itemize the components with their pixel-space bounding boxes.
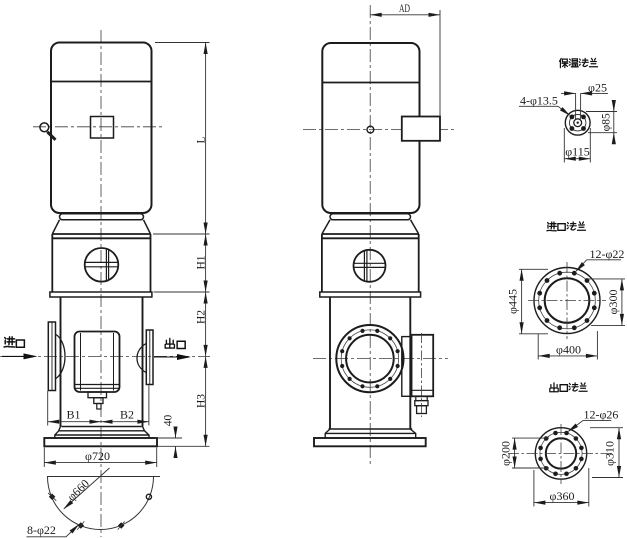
svg-text:8-φ22: 8-φ22 xyxy=(27,523,56,537)
svg-text:φ115: φ115 xyxy=(565,145,589,159)
svg-text:φ200: φ200 xyxy=(499,441,513,466)
svg-text:φ310: φ310 xyxy=(603,441,617,466)
svg-text:40: 40 xyxy=(163,415,175,427)
svg-text:12-φ26: 12-φ26 xyxy=(584,408,619,422)
svg-text:φ720: φ720 xyxy=(85,449,110,463)
svg-text:φ300: φ300 xyxy=(606,290,620,315)
svg-text:H3: H3 xyxy=(196,394,208,408)
svg-text:12-φ22: 12-φ22 xyxy=(590,247,625,261)
svg-text:φ85: φ85 xyxy=(601,113,613,131)
svg-text:AD: AD xyxy=(399,3,410,15)
svg-text:B2: B2 xyxy=(120,408,134,422)
svg-text:B1: B1 xyxy=(66,408,80,422)
svg-text:H2: H2 xyxy=(196,310,208,324)
svg-text:4-φ13.5: 4-φ13.5 xyxy=(520,93,558,107)
svg-text:φ360: φ360 xyxy=(550,489,575,503)
svg-text:L: L xyxy=(196,136,208,143)
svg-text:φ25: φ25 xyxy=(588,81,607,95)
svg-text:φ445: φ445 xyxy=(506,289,520,314)
svg-text:φ400: φ400 xyxy=(556,342,581,356)
svg-text:H1: H1 xyxy=(196,255,208,269)
